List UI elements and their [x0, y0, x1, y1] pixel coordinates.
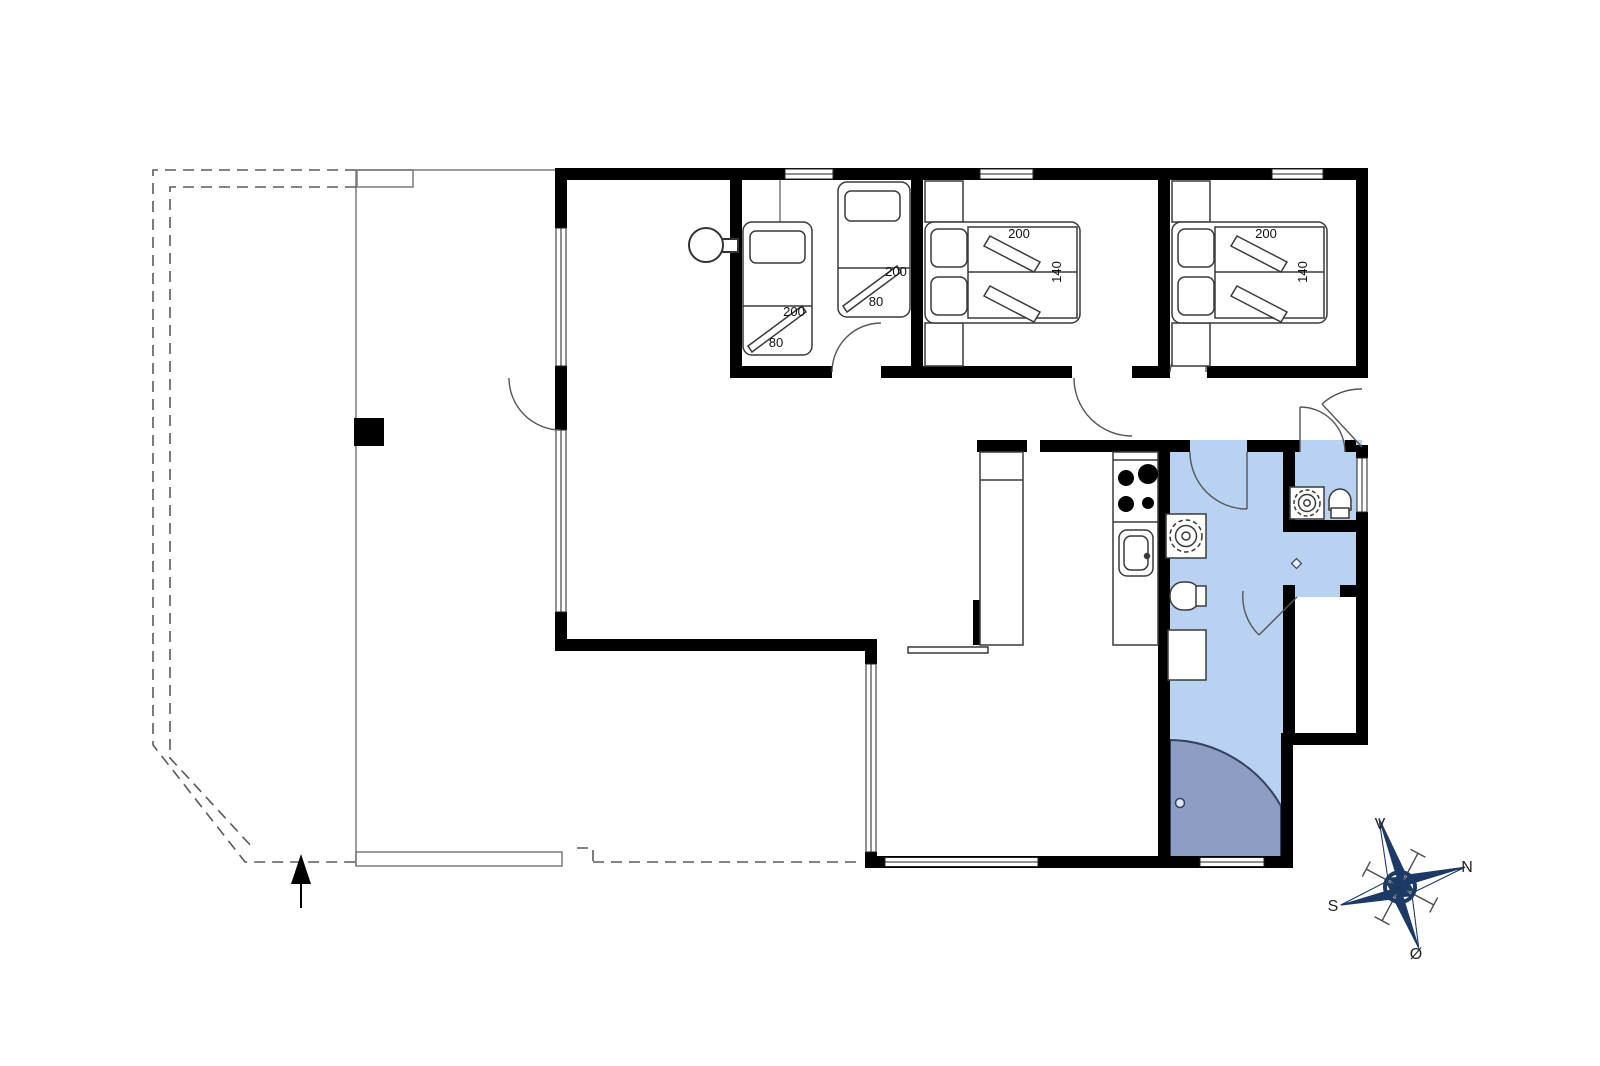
compass-rose-icon: V N S Ø — [1320, 798, 1484, 966]
bed-length-label: 200 — [1008, 226, 1030, 241]
bathroom-cabinet — [1168, 630, 1206, 680]
window-bedroom3 — [1272, 169, 1323, 179]
window-left-lower — [556, 430, 566, 612]
window-extension-left — [866, 664, 876, 852]
compass-label-south: S — [1328, 898, 1339, 915]
washbasin-icon — [1290, 487, 1324, 519]
wardrobe — [1172, 181, 1210, 222]
bedroom2-door-swing — [1074, 378, 1132, 436]
bed-width-label: 80 — [869, 294, 883, 309]
wardrobe — [925, 181, 963, 222]
kitchen-sink-icon — [1119, 530, 1153, 576]
front-door-swing — [1322, 389, 1362, 447]
bed-width-label: 140 — [1049, 261, 1064, 283]
bed-length-label: 200 — [885, 264, 907, 279]
compass-label-north: N — [1461, 859, 1473, 876]
terrace — [356, 170, 562, 866]
bed-width-label: 140 — [1295, 261, 1310, 283]
bed-width-label: 80 — [769, 335, 783, 350]
toilet-icon — [1170, 582, 1206, 610]
window-extension-bottom — [885, 858, 1038, 867]
wardrobe — [925, 323, 963, 366]
window-shower-room — [1200, 858, 1264, 867]
bed-length-label: 200 — [783, 304, 805, 319]
window-left-upper — [556, 228, 566, 366]
terrace-door-swing — [509, 378, 561, 430]
kitchen-table-edge — [908, 647, 988, 653]
toilet-icon — [1329, 489, 1351, 518]
floor-drain-icon — [1176, 799, 1185, 808]
terrace-post — [354, 418, 384, 446]
compass-label-east: Ø — [1410, 946, 1422, 963]
wardrobe — [1172, 323, 1210, 366]
window-bedroom1 — [785, 169, 833, 179]
washbasin-icon — [1166, 514, 1206, 558]
bed-length-label: 200 — [1255, 226, 1277, 241]
kitchen — [908, 452, 1158, 653]
compass-label-west: V — [1375, 816, 1386, 833]
kitchen-island-counter — [980, 452, 1023, 645]
window-bedroom2 — [980, 169, 1033, 179]
window-wc — [1357, 458, 1367, 512]
floor-plan: 200 80 200 80 200 140 200 14 — [0, 0, 1600, 1066]
bedroom1-door-swing — [832, 323, 881, 372]
